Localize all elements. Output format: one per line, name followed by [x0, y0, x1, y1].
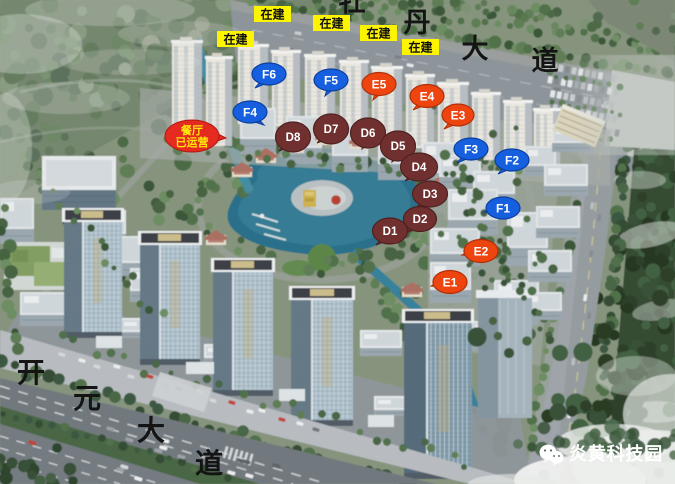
svg-text:E3: E3	[451, 108, 466, 122]
svg-text:D8: D8	[286, 132, 301, 144]
svg-text:F4: F4	[243, 105, 257, 119]
svg-text:D1: D1	[383, 226, 398, 238]
svg-text:餐厅: 餐厅	[180, 123, 203, 137]
svg-text:在建: 在建	[408, 40, 433, 55]
svg-text:F5: F5	[324, 73, 338, 87]
svg-text:大: 大	[462, 34, 489, 64]
svg-text:在建: 在建	[319, 16, 344, 31]
svg-text:E1: E1	[443, 275, 458, 289]
svg-text:已运营: 已运营	[176, 135, 209, 149]
svg-text:F1: F1	[496, 201, 510, 215]
svg-text:D4: D4	[412, 162, 427, 174]
svg-text:E2: E2	[474, 244, 489, 258]
svg-text:道: 道	[532, 45, 559, 76]
svg-text:E5: E5	[372, 77, 387, 91]
svg-text:丹: 丹	[404, 8, 431, 38]
svg-text:道: 道	[195, 447, 223, 480]
svg-text:F6: F6	[262, 67, 276, 81]
svg-text:大: 大	[137, 415, 165, 447]
svg-text:F3: F3	[464, 142, 478, 156]
svg-text:元: 元	[73, 384, 101, 415]
svg-text:在建: 在建	[260, 7, 285, 22]
svg-text:开: 开	[17, 358, 45, 389]
svg-text:D2: D2	[413, 214, 428, 226]
svg-text:E4: E4	[420, 89, 435, 103]
svg-text:D7: D7	[324, 124, 339, 136]
svg-text:在建: 在建	[223, 32, 248, 47]
svg-text:D5: D5	[391, 141, 406, 153]
svg-text:炎黄科技园: 炎黄科技园	[569, 443, 663, 464]
svg-text:牡: 牡	[339, 0, 366, 17]
svg-text:D6: D6	[361, 128, 376, 140]
svg-text:D3: D3	[423, 189, 438, 201]
svg-text:F2: F2	[505, 153, 519, 167]
svg-text:在建: 在建	[366, 26, 391, 41]
